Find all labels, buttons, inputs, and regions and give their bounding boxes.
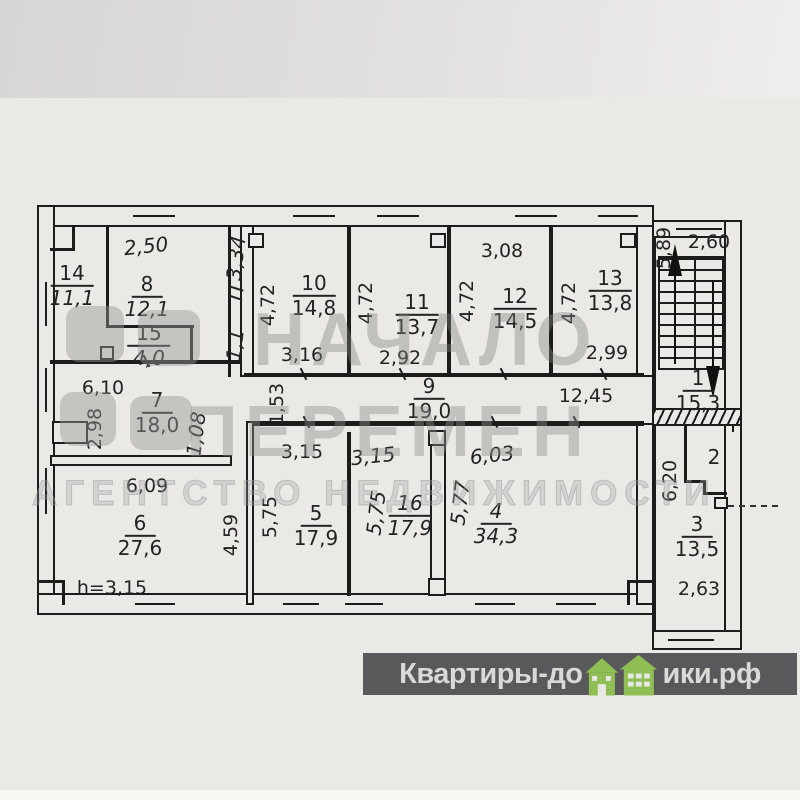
dim-shaft-door: П [223, 284, 249, 302]
room-number: 11 [395, 292, 438, 316]
room-label-5: 5 17,9 [294, 503, 339, 549]
window [37, 368, 55, 412]
duct-right-line [444, 432, 446, 582]
niche-room7 [52, 421, 88, 444]
room-label-16: 16 17,9 [388, 493, 433, 539]
room-area: 13,5 [675, 538, 720, 560]
room-area: 27,6 [118, 537, 163, 559]
room-number: 5 [301, 503, 332, 527]
room-area: 19,0 [407, 400, 452, 422]
room-number: 13 [588, 268, 631, 292]
axis-dashed-line [728, 505, 778, 507]
room-number: 4 [481, 501, 512, 525]
dim-room16-top: 3,15 [350, 442, 397, 471]
dim-room5-depth: 5,75 [259, 496, 281, 538]
dim-room8-top: 2,50 [123, 232, 170, 261]
stairs-up-arrow [674, 274, 676, 364]
window [668, 630, 714, 650]
dim-hall-depth: 6,20 [659, 460, 681, 502]
wall-room11-room12 [447, 227, 451, 375]
room-number: 12 [493, 286, 536, 310]
room-area: 17,9 [388, 517, 433, 539]
room-number: 9 [414, 376, 445, 400]
window [556, 593, 596, 615]
door-room10 [248, 233, 264, 248]
room-number: 10 [292, 273, 335, 297]
room-area: 17,9 [294, 527, 339, 549]
dim-room6-depth: 4,59 [220, 514, 242, 556]
room-area: 34,3 [474, 525, 519, 547]
dim-corridor-right: 12,45 [559, 385, 613, 407]
houses-logo-icon [584, 654, 662, 698]
room-label-2: 2 [699, 447, 730, 469]
wall-tower-right [724, 220, 742, 650]
dim-room11-depth: 4,72 [355, 282, 377, 324]
ceiling-height-note: h=3,15 [77, 577, 147, 599]
door-room3 [714, 497, 728, 509]
room-label-3: 3 13,5 [675, 514, 720, 560]
dim-room3-width: 2,63 [678, 578, 720, 600]
stairs-rail [694, 258, 696, 368]
dim-room5-top: 3,15 [281, 441, 323, 463]
dim-room11-width: 2,92 [379, 347, 421, 369]
wall-tower-left-lower [652, 426, 656, 632]
wall-room6-room5 [246, 421, 254, 605]
wall-room12-room13 [549, 227, 553, 375]
room-number: 8 [132, 274, 163, 298]
paper-edge [0, 790, 800, 800]
dim-room12-depth: 4,72 [456, 280, 478, 322]
room-label-13: 13 13,8 [588, 268, 633, 314]
dim-stairs-width: 2,60 [688, 231, 730, 253]
brand-text-suffix: ики.рф [663, 658, 761, 691]
window [37, 468, 55, 514]
room-number: 14 [50, 263, 93, 287]
footer-brand-bar: Квартиры-до ики.рф [363, 653, 797, 695]
window [598, 205, 638, 227]
room-label-7: 7 18,0 [135, 390, 180, 436]
room-number: 7 [142, 390, 173, 414]
room-label-9: 9 19,0 [407, 376, 452, 422]
dim-shaft-width: 1,1 [221, 328, 249, 363]
wall-room14-room8 [106, 225, 109, 327]
room-number: 15 [127, 323, 170, 347]
room-area: 4,0 [127, 347, 170, 369]
room-area: 13,8 [588, 292, 633, 314]
window [515, 205, 557, 227]
duct-top-box [428, 430, 446, 446]
dim-room12-top: 3,08 [481, 240, 523, 262]
room-label-14: 14 11,1 [50, 263, 95, 309]
room-area: 11,1 [50, 287, 95, 309]
dim-room7-top: 6,10 [82, 377, 124, 399]
dim-room4-top: 6,03 [469, 441, 516, 470]
dim-room13-width: 2,99 [586, 342, 628, 364]
door-room13 [620, 233, 636, 248]
door-room11 [430, 233, 446, 248]
room-area: 18,0 [135, 414, 180, 436]
wall-room10-room11 [347, 227, 351, 375]
wall-exterior-top [37, 205, 654, 227]
window [345, 593, 383, 615]
room-label-15: 15 4,0 [127, 323, 170, 369]
window [293, 205, 335, 227]
room-number: 1 [683, 368, 714, 392]
brand-text-prefix: Квартиры-до [399, 658, 582, 691]
photo-background [0, 0, 800, 98]
window [283, 593, 319, 615]
duct-bottom-box [428, 578, 446, 596]
room-label-11: 11 13,7 [395, 292, 440, 338]
room-number: 16 [388, 493, 431, 517]
window [133, 205, 175, 227]
wall-step-room6 [62, 580, 65, 605]
room-label-8: 8 12,1 [125, 274, 170, 320]
room-label-10: 10 14,8 [292, 273, 337, 319]
wall-room2-left [684, 426, 687, 483]
dim-room10-depth: 4,72 [257, 284, 279, 326]
dim-stairs-height: 5,89 [653, 227, 675, 269]
wall-room15-right [190, 325, 193, 364]
room-label-6: 6 27,6 [118, 513, 163, 559]
room-area: 15,3 [676, 392, 721, 414]
room-number: 2 [699, 447, 730, 469]
dim-room6-top: 6,09 [126, 475, 168, 497]
dim-room13-depth: 4,72 [558, 282, 580, 324]
room-number: 3 [682, 514, 713, 538]
room-area: 13,7 [395, 316, 440, 338]
stairs-down-arrow [712, 282, 714, 368]
wall-room2-notch [703, 492, 727, 495]
wall-step-room4 [627, 580, 654, 583]
window [377, 205, 419, 227]
shaft-room15 [100, 346, 114, 360]
wall-step-room4 [627, 580, 630, 605]
room-label-1: 1 15,3 [676, 368, 721, 414]
dim-corridor-left: 1,53 [266, 383, 288, 425]
room-area: 12,1 [125, 298, 170, 320]
window [475, 593, 515, 615]
dim-room10-width: 3,16 [281, 344, 323, 366]
room-area: 14,8 [292, 297, 337, 319]
dim-room7-niche: 2,98 [84, 408, 106, 450]
room-label-12: 12 14,5 [493, 286, 538, 332]
wall-step-room14 [72, 227, 75, 251]
room-number: 6 [125, 513, 156, 537]
room-label-4: 4 34,3 [474, 501, 519, 547]
room-area: 14,5 [493, 310, 538, 332]
